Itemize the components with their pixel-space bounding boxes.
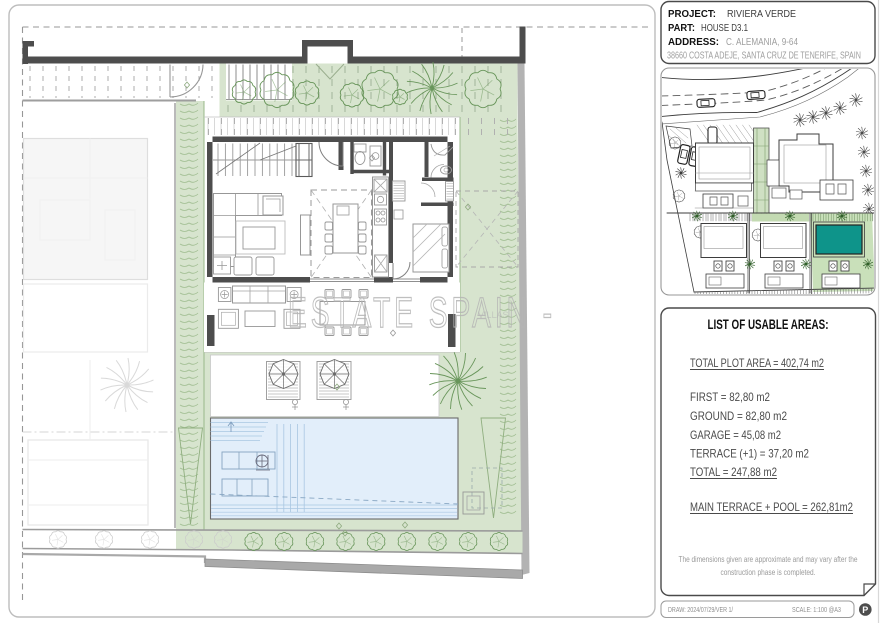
svg-text:SCALE: 1:100 @A3: SCALE: 1:100 @A3 <box>792 607 841 614</box>
svg-text:TOTAL PLOT AREA = 402,74 m2: TOTAL PLOT AREA = 402,74 m2 <box>690 356 824 370</box>
svg-text:GARAGE = 45,08 m2: GARAGE = 45,08 m2 <box>690 428 781 442</box>
svg-text:construction phase is complete: construction phase is completed. <box>721 567 816 577</box>
svg-text:HOUSE D3.1: HOUSE D3.1 <box>701 23 748 34</box>
svg-text:GROUND = 82,80 m2: GROUND = 82,80 m2 <box>690 409 787 423</box>
svg-text:TERRACE (+1) = 37,20 m2: TERRACE (+1) = 37,20 m2 <box>690 447 809 461</box>
svg-text:VILLAS: VILLAS <box>478 310 509 320</box>
svg-text:C. ALEMANIA, 9-64: C. ALEMANIA, 9-64 <box>726 37 798 48</box>
svg-text:P: P <box>862 605 868 615</box>
svg-text:The dimensions given are appro: The dimensions given are approximate and… <box>679 554 858 564</box>
svg-text:LIST OF USABLE AREAS:: LIST OF USABLE AREAS: <box>708 317 829 332</box>
svg-text:PART:: PART: <box>668 23 695 34</box>
svg-text:ADDRESS:: ADDRESS: <box>668 37 719 48</box>
svg-text:PROJECT:: PROJECT: <box>668 9 716 20</box>
svg-text:DRAW: 2024/07/29/VER 1/: DRAW: 2024/07/29/VER 1/ <box>668 607 733 614</box>
svg-text:FIRST = 82,80 m2: FIRST = 82,80 m2 <box>690 390 770 404</box>
svg-text:ESTATE SPAIN -: ESTATE SPAIN - <box>288 289 556 337</box>
svg-text:TOTAL = 247,88 m2: TOTAL = 247,88 m2 <box>690 465 777 479</box>
svg-text:MAIN TERRACE + POOL = 262,81m2: MAIN TERRACE + POOL = 262,81m2 <box>690 500 853 514</box>
svg-text:38660 COSTA ADEJE, SANTA CRUZ: 38660 COSTA ADEJE, SANTA CRUZ DE TENERIF… <box>667 51 861 62</box>
svg-text:RIVIERA VERDE: RIVIERA VERDE <box>727 9 796 20</box>
